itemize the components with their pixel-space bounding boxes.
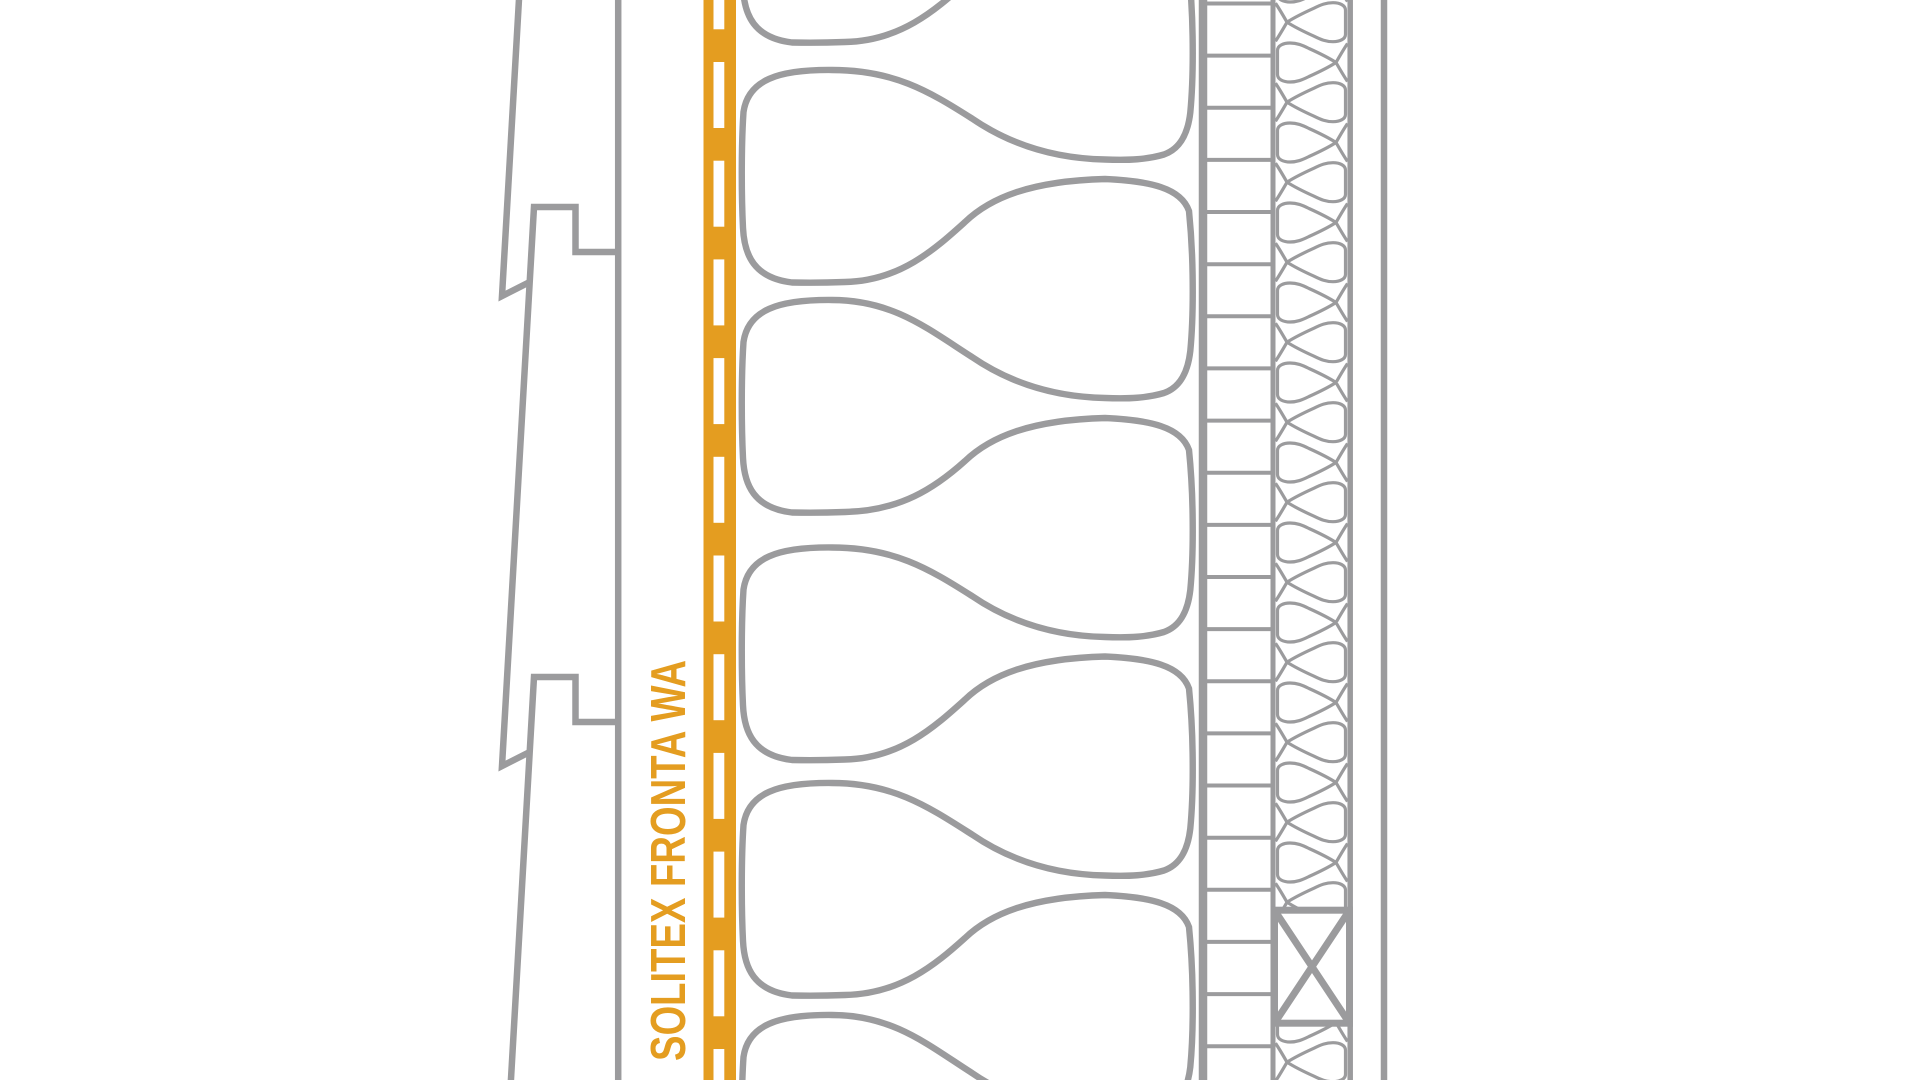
svg-text:SOLITEX FRONTA WA: SOLITEX FRONTA WA xyxy=(642,660,696,1061)
